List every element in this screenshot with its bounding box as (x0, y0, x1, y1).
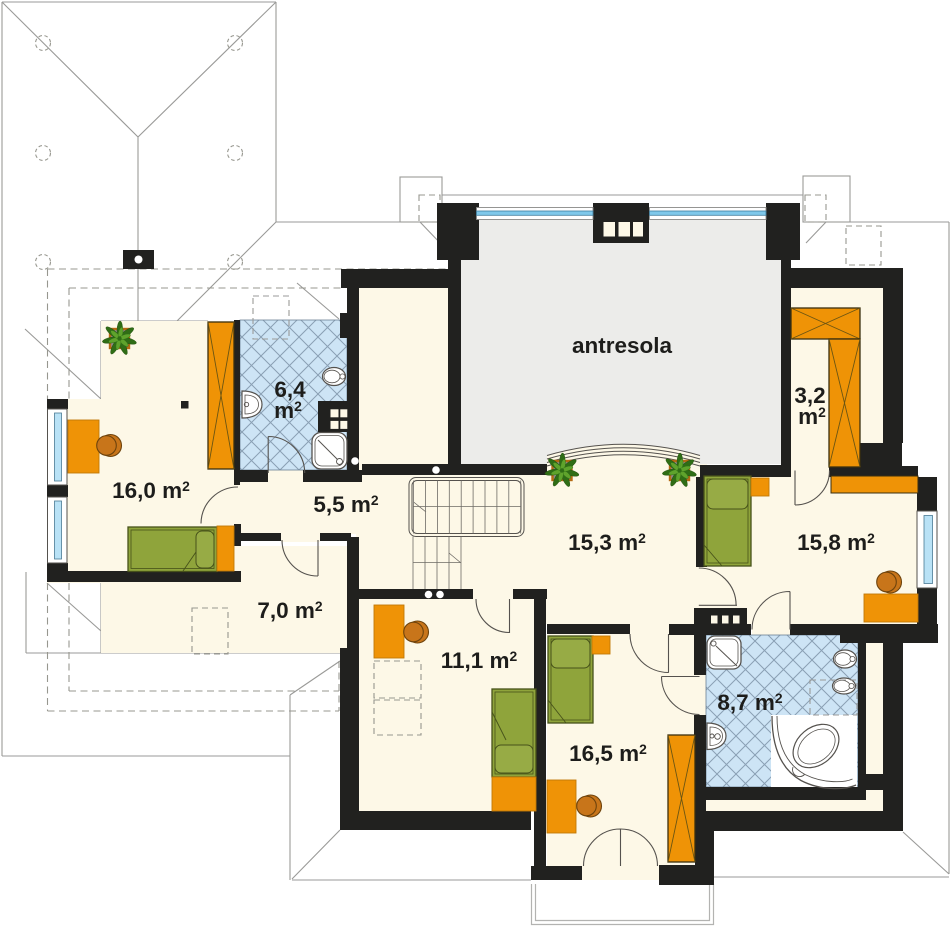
svg-text:8,7 m2: 8,7 m2 (717, 690, 783, 715)
svg-text:11,1 m2: 11,1 m2 (441, 648, 518, 673)
svg-text:15,8 m2: 15,8 m2 (797, 530, 875, 555)
svg-text:15,3 m2: 15,3 m2 (568, 530, 646, 555)
svg-text:7,0 m2: 7,0 m2 (257, 598, 323, 623)
svg-text:5,5 m2: 5,5 m2 (313, 492, 379, 517)
svg-text:antresola: antresola (572, 333, 673, 358)
svg-text:16,5 m2: 16,5 m2 (569, 741, 647, 766)
svg-text:16,0 m2: 16,0 m2 (112, 478, 190, 503)
